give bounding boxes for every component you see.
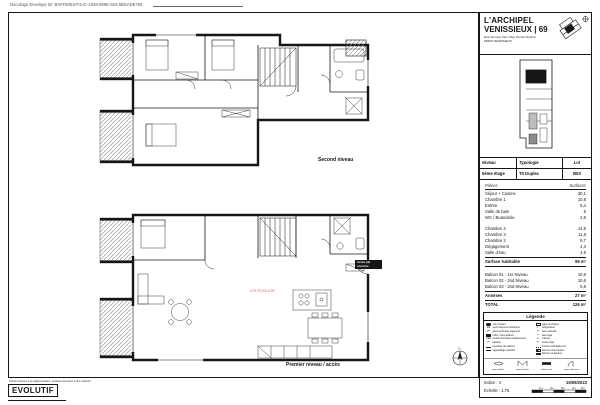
- docusign-underline: [153, 6, 243, 7]
- svg-text:N: N: [458, 347, 460, 351]
- fixed-frame-icon: [541, 360, 552, 367]
- north-arrow-icon: N: [453, 347, 467, 366]
- total-row: TOTAL126 m²: [485, 302, 586, 308]
- svg-text:2m: 2m: [550, 386, 554, 390]
- legend-left-column: volet roulant smseuil maçonné chanfreiné…: [486, 323, 536, 356]
- hob-icon: c: [536, 338, 541, 341]
- regulation-disclaimer: Conformément à la réglementation, surfac…: [9, 380, 90, 383]
- value-typologie: T5 Duplex: [516, 169, 562, 179]
- surfaces-header: Pièces Surfaces: [485, 183, 586, 190]
- closet-icon: pl: [486, 341, 491, 344]
- plan-premier-niveau: LOT ÉVOLUTIF: [100, 215, 368, 360]
- balcony-hatch-bottom: [100, 218, 133, 358]
- interior-door-icon: [566, 360, 577, 367]
- key-plan: [480, 55, 591, 158]
- header-niveau: Niveau: [480, 158, 516, 168]
- access-badge: Accès par coursive: [355, 260, 382, 269]
- surface-row: Salle d'eau4,9: [485, 250, 586, 256]
- dryer-icon: sl: [536, 341, 541, 344]
- tile-full-icon: [536, 349, 541, 352]
- legend-title: Légende: [484, 313, 587, 321]
- dishwasher-icon: lv: [536, 330, 541, 333]
- balcony-row: Balcon 03 - 2nd Niveau5,8: [485, 284, 586, 290]
- plan-sheet: DocuSign Envelope ID: BAFF50E3-F4AC-4329…: [0, 0, 600, 405]
- value-lot: B53: [562, 169, 591, 179]
- logo-underline: [8, 400, 66, 401]
- key-plan-drawing: [512, 58, 560, 154]
- fridge-icon: r: [536, 327, 541, 330]
- thermal-module-icon: mta: [486, 338, 491, 341]
- surface-habitable-row: Surface habitable99 m²: [485, 259, 586, 265]
- washer-icon: ll: [536, 334, 541, 337]
- entrance-door-icon: [493, 360, 504, 367]
- revision-index: Indice : 4: [484, 379, 501, 387]
- title-block-panel: L'ARCHIPEL VENISSIEUX | 69 Rue Simone Ve…: [479, 12, 592, 398]
- svg-text:5m: 5m: [581, 386, 585, 390]
- svg-text:3m: 3m: [561, 386, 565, 390]
- sanitary-icon: [486, 350, 491, 351]
- soffit-icon: [486, 334, 491, 337]
- project-header: L'ARCHIPEL VENISSIEUX | 69 Rue Simone Ve…: [480, 13, 591, 55]
- svg-text:1m: 1m: [539, 386, 543, 390]
- docusign-envelope-id: DocuSign Envelope ID: BAFF50E3-F4AC-4329…: [10, 2, 142, 7]
- first-level-label: Premier niveau / accès: [286, 362, 340, 368]
- ceiling-drop-icon: [486, 347, 491, 348]
- plan-second-niveau: [100, 35, 368, 165]
- scale-label: Échelle : 1:75: [484, 387, 509, 395]
- header-typologie: Typologie: [516, 158, 562, 168]
- tile-half-icon: [536, 353, 541, 356]
- tech-duct-icon: [536, 323, 541, 326]
- panel-footer: Indice : 4 15/09/2023 Échelle : 1:75 1m …: [480, 377, 591, 398]
- building-axon-icon: [559, 15, 589, 41]
- duct-icon: gtl: [486, 330, 491, 333]
- second-level-label: Second niveau: [318, 157, 353, 163]
- surfaces-table: Pièces Surfaces Séjour + Cuisine30,1 Cha…: [480, 180, 591, 311]
- lot-info-header-row: Niveau Typologie Lot: [480, 158, 591, 169]
- scale-bar: 1m 2m 3m 4m 5m: [531, 386, 587, 395]
- plan-date: 15/09/2023: [566, 379, 587, 387]
- legend: Légende volet roulant smseuil maçonné ch…: [483, 312, 588, 375]
- evolutif-logo: EVOLUTIF: [8, 384, 58, 397]
- lot-outline-icon: [536, 347, 541, 348]
- lot-evolutif-label: LOT ÉVOLUTIF: [250, 288, 276, 293]
- floor-plan-drawing: LOT ÉVOLUTIF N: [8, 12, 480, 398]
- value-niveau: 5ème étage: [480, 169, 516, 179]
- roller-shutter-icon: [486, 323, 491, 326]
- lot-info-value-row: 5ème étage T5 Duplex B53: [480, 169, 591, 179]
- lot-info-table: Niveau Typologie Lot 5ème étage T5 Duple…: [480, 158, 591, 180]
- annexes-row: Annexes27 m²: [485, 293, 586, 299]
- legend-symbols: porte palière porte-fenêtre châssis fixe…: [484, 358, 587, 374]
- header-lot: Lot: [562, 158, 591, 168]
- legend-right-column: gaine technique rréfrigérateur lvlave-va…: [536, 323, 586, 356]
- french-window-icon: [517, 360, 528, 367]
- svg-text:4m: 4m: [572, 386, 576, 390]
- balcony-hatch-top: [100, 38, 133, 163]
